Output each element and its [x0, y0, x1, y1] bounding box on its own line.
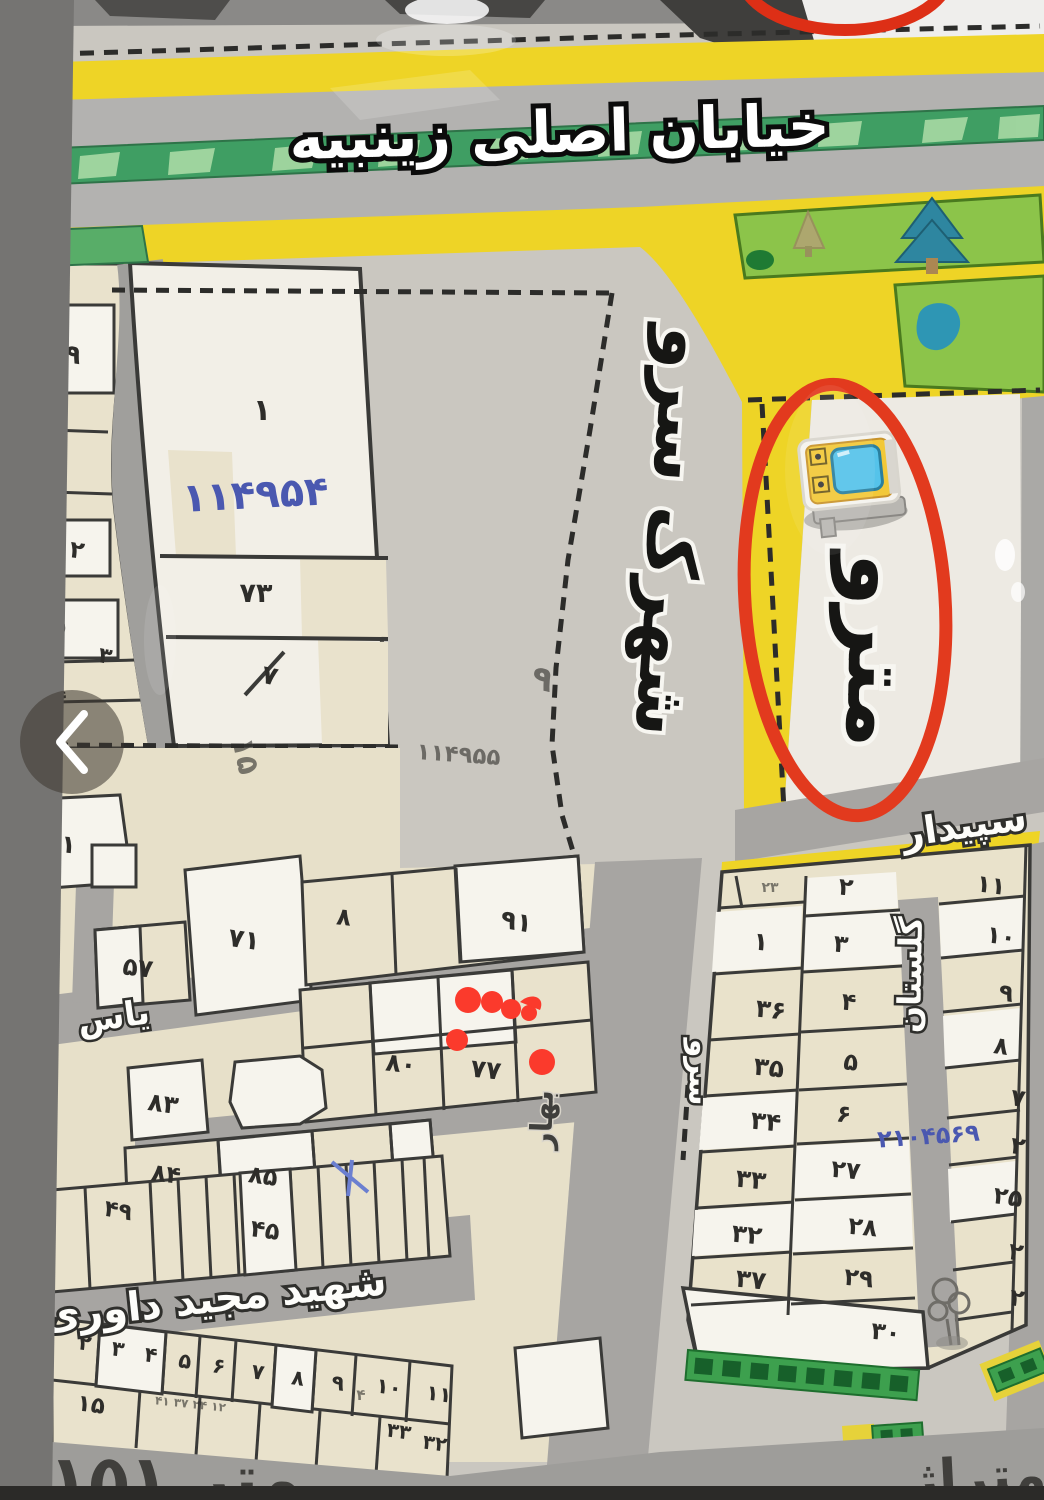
parcel-number: ۷۷ [469, 1054, 502, 1086]
prev-button[interactable] [20, 690, 124, 794]
parcel-number: ۱۱ [975, 869, 1008, 901]
parcel-number: ۷۳ [240, 578, 273, 609]
parcel-code-block1: ۱۱۴۹۵۴ [181, 468, 330, 522]
parcel-number: ۳۴ [749, 1106, 782, 1138]
faint-number: ۱۵ [224, 734, 266, 777]
parcel-number: ۹۱ [498, 905, 534, 940]
parcel-number: ۳۲ [730, 1219, 763, 1251]
parcel-number: ۴۵ [249, 1214, 282, 1246]
parcel-number: ۳۳ [734, 1164, 767, 1196]
parcel-number: ۱۱ [425, 1380, 454, 1407]
parcel-number: ۸۵ [247, 1160, 280, 1192]
parcel-number: ۸۴ [150, 1158, 183, 1190]
parcel-number: ۳۵ [752, 1052, 785, 1084]
parcel-number: ۸۰ [384, 1048, 417, 1080]
street-label-bahar: بهار [524, 1089, 561, 1152]
parcel-number: ۵ [842, 1047, 860, 1076]
metro-label: مترو [826, 548, 929, 749]
parcel-number: ۳۶ [754, 994, 787, 1026]
parcel-number: ۶ [835, 1099, 853, 1128]
parcel-number: ۷۱ [226, 923, 262, 957]
parcel-number: ۱۵ [75, 1390, 106, 1420]
shrub-icon [746, 250, 774, 270]
parcel-number: ۵۷ [121, 952, 154, 984]
parcel-number: ۲۸ [847, 1212, 879, 1243]
parcel-number: ۲۵ [992, 1181, 1025, 1213]
parcel-number: ۱۰ [985, 920, 1018, 952]
parcel-number: ۴ [356, 1386, 365, 1404]
map-photo: خیابان اصلی زینبیه شهرک سرو مترو سپیدار … [0, 0, 1044, 1500]
parcel-number: ۲۷ [830, 1155, 862, 1186]
parcel-number: ۴ [840, 987, 858, 1016]
parcel-number: ۲۳ [761, 880, 779, 896]
parcel-number: ۸۳ [146, 1087, 180, 1120]
parcel-number: ۱ [752, 926, 770, 956]
street-label-sarv: سرو [681, 1036, 717, 1105]
right-lower-block [683, 758, 1044, 1490]
parcel-number: ۳۷ [734, 1264, 767, 1296]
parcel-number: ۴۹ [102, 1196, 134, 1226]
street-label-golestan: گلستان [890, 916, 930, 1034]
parcel-number: ۱ [253, 393, 271, 428]
parcel-number: ۱۰ [375, 1373, 404, 1400]
parcel-number: ۲۹ [843, 1263, 875, 1294]
parcel-number: ۳۳ [385, 1417, 413, 1444]
parcel-number: ۳۲ [421, 1429, 449, 1456]
parcel-number: ۳۰ [870, 1317, 902, 1348]
